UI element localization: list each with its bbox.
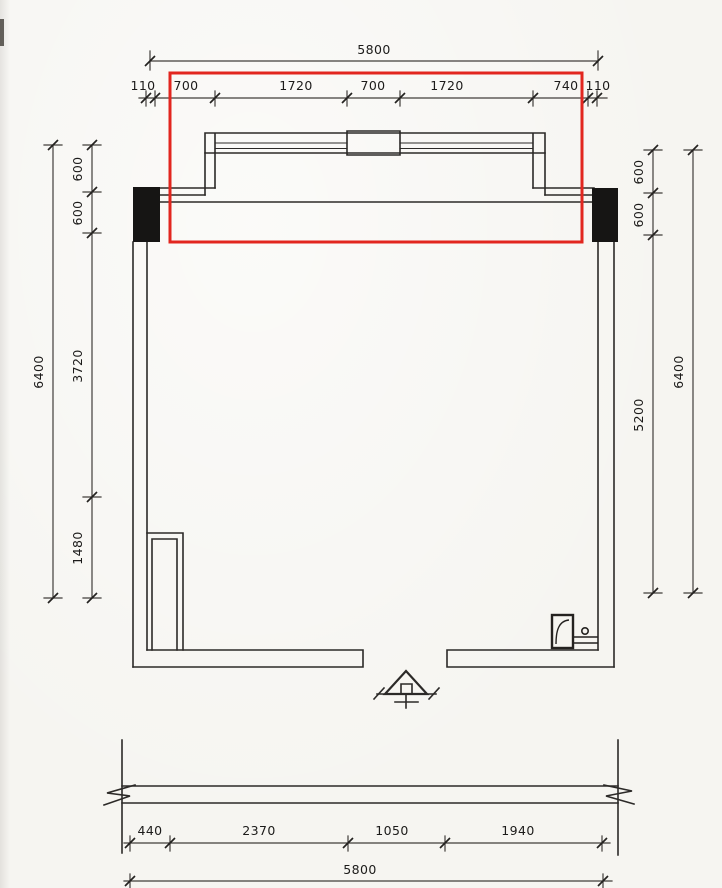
- fixture-unit: [552, 615, 598, 648]
- fixture-curve: [556, 620, 569, 644]
- wall-stub-lines: [147, 533, 183, 650]
- arrow-notch: [401, 684, 412, 694]
- window-center-mullion-box: [347, 131, 400, 155]
- section-break-right: [604, 785, 634, 804]
- section-rails: [122, 740, 618, 855]
- dim-left-segment-3: 1480: [70, 531, 85, 564]
- right-wall-lines: [598, 241, 614, 667]
- dim-right-outer-label: 6400: [671, 355, 686, 388]
- floor-plan-drawing: 5800 110 700 1720 700 1720 740 110 6400 …: [0, 0, 722, 888]
- bay-side-walls: [205, 153, 545, 195]
- column-left: [133, 187, 160, 242]
- dim-bottom-segment-0: 440: [137, 823, 162, 838]
- dim-top-segment-0: 110: [130, 78, 155, 93]
- dim-bottom-segment-2: 1050: [375, 823, 408, 838]
- fixture-box: [552, 615, 573, 648]
- dim-top-segment-3: 700: [360, 78, 385, 93]
- room-walls: [133, 241, 614, 667]
- column-right: [592, 188, 618, 242]
- dim-bottom-overall-label: 5800: [343, 862, 376, 877]
- dim-left-outer: 6400: [31, 140, 62, 603]
- dim-top-segments: 110 700 1720 700 1720 740 110: [130, 78, 610, 106]
- section-break-left: [104, 785, 135, 805]
- dim-left-outer-label: 6400: [31, 355, 46, 388]
- section-strip: [104, 740, 634, 855]
- bay-wall-steps: [158, 188, 594, 195]
- dim-right-segment-2: 5200: [631, 398, 646, 431]
- dim-top-segment-6: 110: [585, 78, 610, 93]
- dim-top-segment-2: 1720: [279, 78, 312, 93]
- dim-left-inner: 600 600 3720 1480: [70, 140, 101, 603]
- scanned-floor-plan: 5800 110 700 1720 700 1720 740 110 6400 …: [0, 0, 722, 888]
- fixture-circle: [582, 628, 588, 634]
- dim-right-segment-0: 600: [631, 159, 646, 184]
- dim-top-segment-5: 740: [553, 78, 578, 93]
- dim-top-overall-label: 5800: [357, 42, 390, 57]
- section-beam-lines: [122, 786, 618, 803]
- arrow-stem: [395, 694, 418, 708]
- arrow-head: [385, 671, 427, 694]
- dim-top-segment-4: 1720: [430, 78, 463, 93]
- dim-left-segment-0: 600: [70, 156, 85, 181]
- bay-window: [158, 131, 594, 195]
- dim-right-outer: 6400: [671, 145, 702, 598]
- bottom-wall-left-segment: [133, 650, 363, 667]
- dim-bottom-overall: 5800: [124, 862, 612, 888]
- dim-right-inner: 600 600 5200: [631, 145, 662, 598]
- left-wall-lines: [133, 242, 147, 667]
- dim-bottom-segment-1: 2370: [242, 823, 275, 838]
- dim-left-segment-2: 3720: [70, 349, 85, 382]
- dim-top-overall: 5800: [145, 42, 603, 70]
- dim-bottom-segments: 440 2370 1050 1940: [124, 823, 610, 851]
- wall-stub: [147, 533, 183, 650]
- window-glazing-lines: [215, 143, 533, 149]
- scan-edge-artifact: [0, 19, 4, 46]
- dim-top-segment-1: 700: [173, 78, 198, 93]
- entrance-arrow: [374, 671, 439, 708]
- dim-left-segment-1: 600: [70, 200, 85, 225]
- bottom-wall-right-segment: [447, 650, 614, 667]
- dim-bottom-segment-3: 1940: [501, 823, 534, 838]
- fixture-connector-lines: [573, 637, 598, 643]
- dim-right-segment-1: 600: [631, 202, 646, 227]
